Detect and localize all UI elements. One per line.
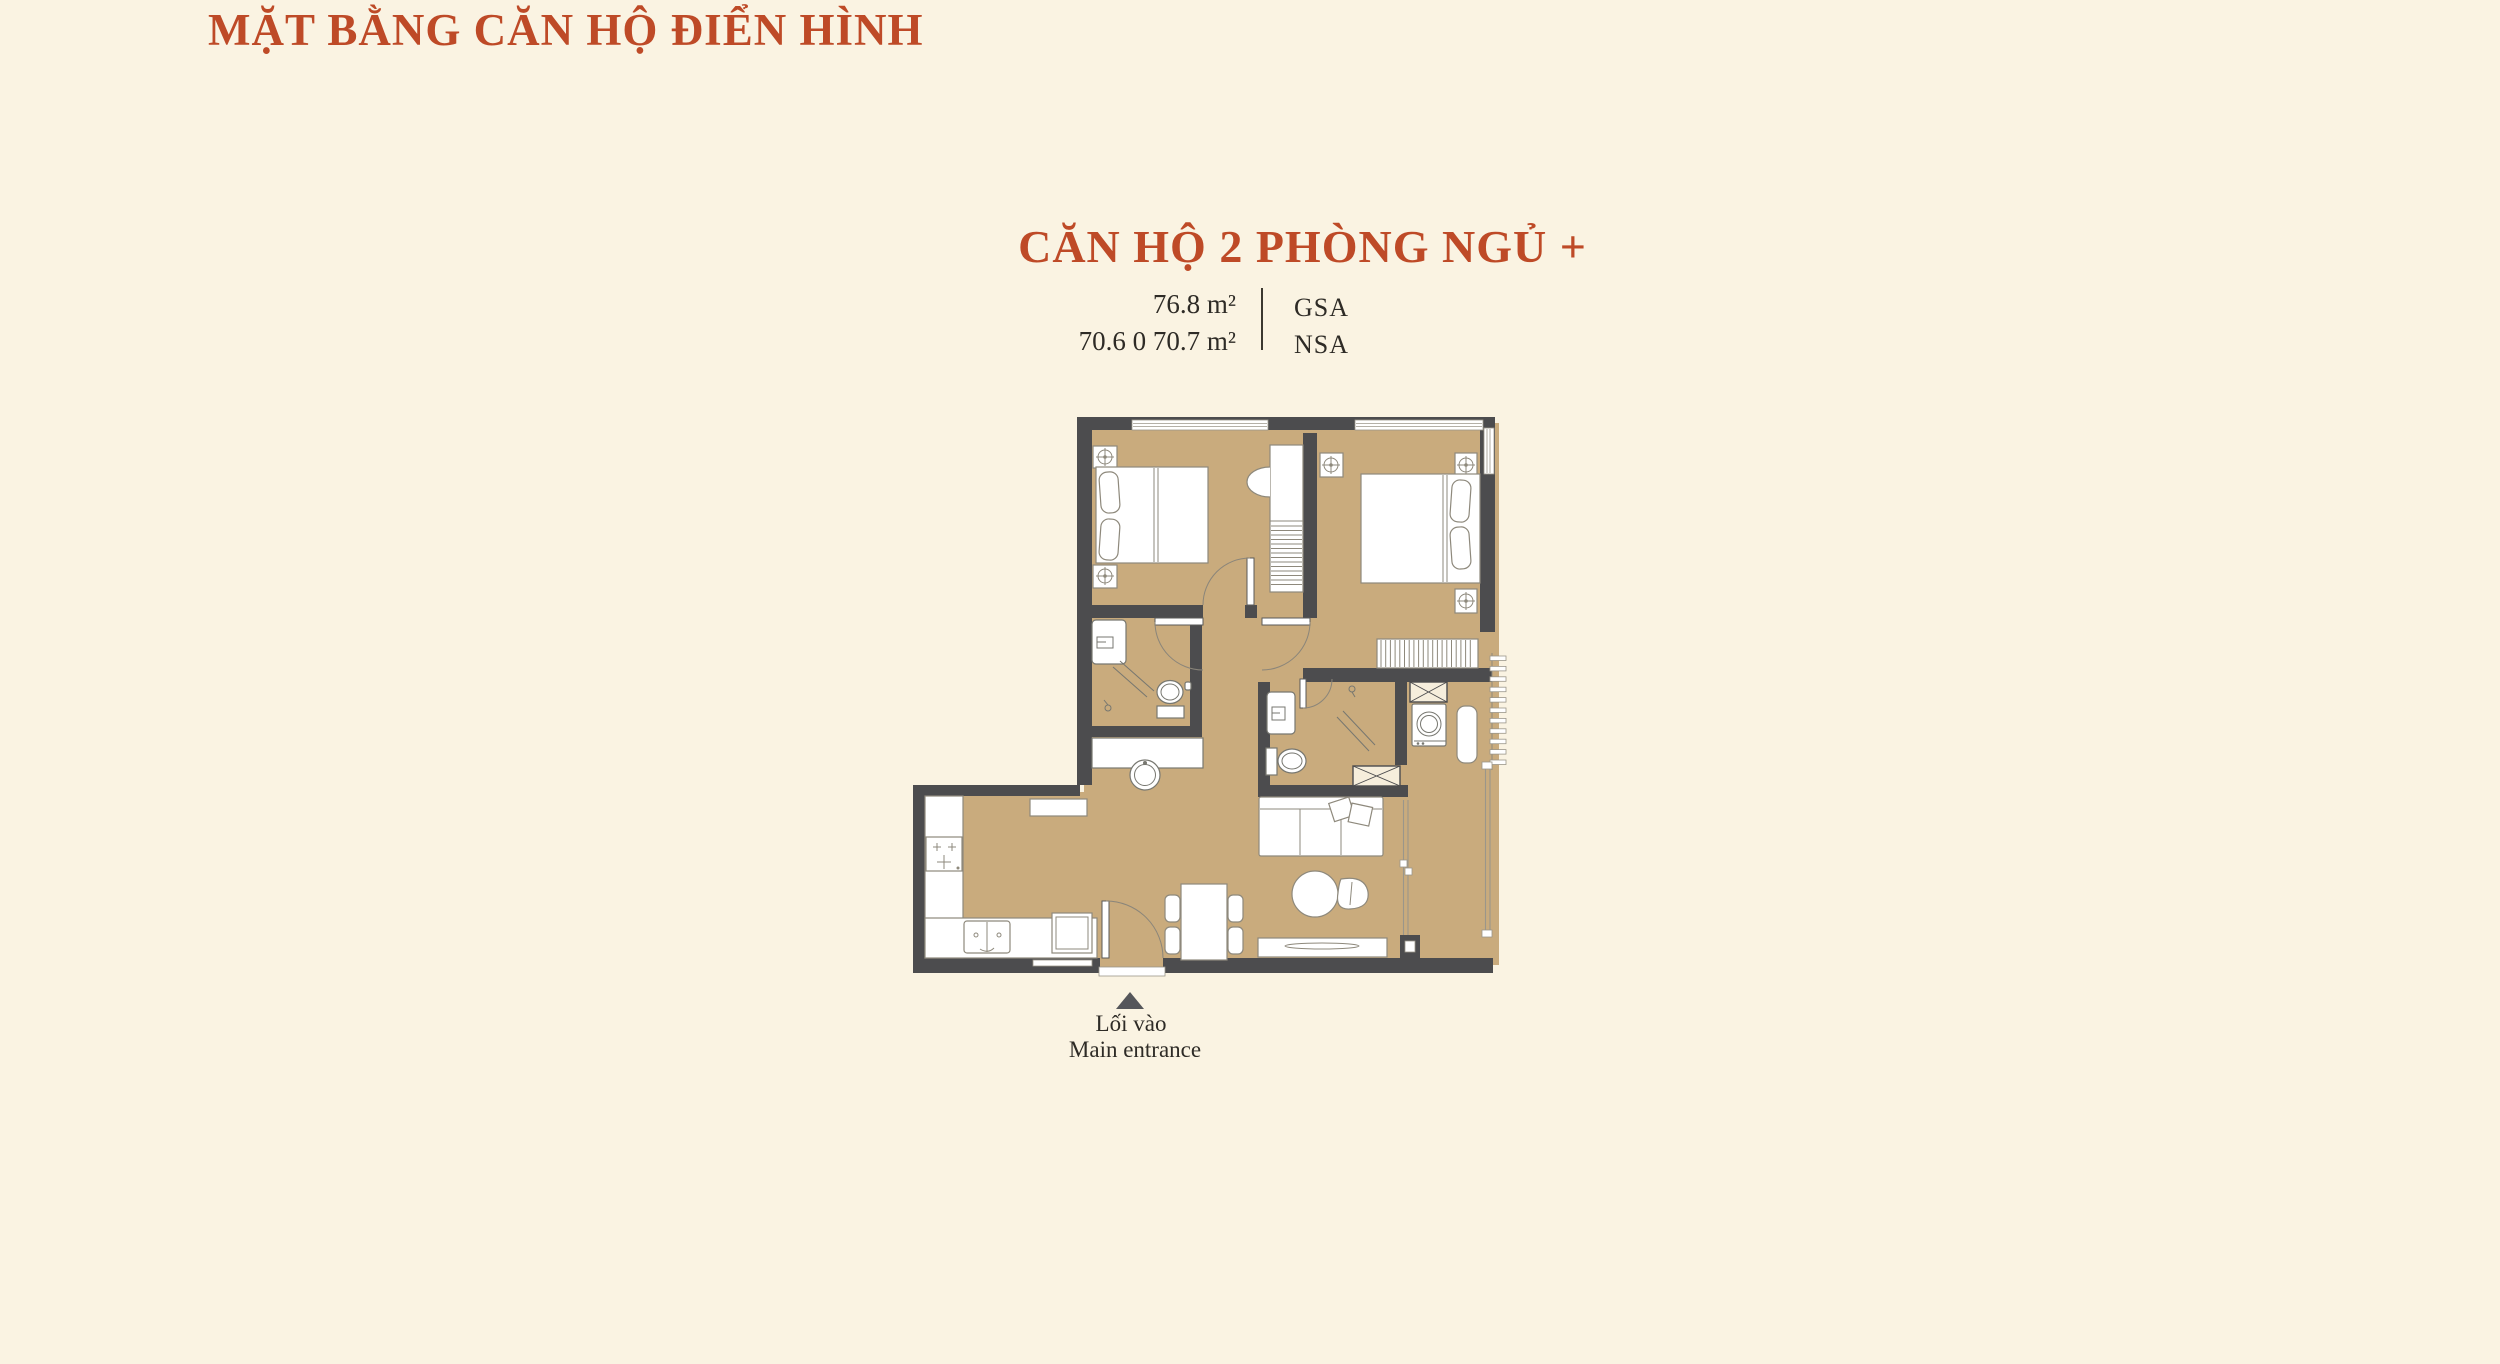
nightstand-icon: [1455, 453, 1477, 477]
floor-plan-drawing: [900, 390, 1540, 1015]
chair-icon: [1228, 895, 1243, 922]
area-labels: GSA NSA: [1294, 289, 1414, 363]
sink-icon: [1092, 620, 1126, 664]
tv-console-icon: [1258, 938, 1387, 957]
sink-icon: [1267, 692, 1295, 734]
area-nsa-value: 70.6 0 70.7 m²: [1000, 323, 1236, 360]
kitchen-cabinet: [1030, 799, 1087, 816]
entrance-arrow-icon: [1116, 992, 1144, 1009]
area-values: 76.8 m² 70.6 0 70.7 m²: [1000, 286, 1236, 360]
area-nsa-label: NSA: [1294, 326, 1414, 363]
armchair-icon: [1338, 878, 1369, 909]
chair-icon: [1228, 927, 1243, 954]
window-bedroom1-icon: [1132, 420, 1268, 430]
nightstand-icon: [1093, 565, 1117, 588]
rug-icon: [1292, 871, 1338, 917]
shelf-icon: [1457, 706, 1477, 763]
chair-icon: [1165, 927, 1180, 954]
nightstand-icon: [1093, 446, 1117, 468]
drying-rack-icon: [1490, 653, 1506, 770]
floor-plan: [900, 390, 1540, 1015]
washing-machine-icon: [1412, 704, 1446, 746]
window-bedroom2-icon: [1355, 420, 1483, 430]
unit-name: CĂN HỘ 2 PHÒNG NGỦ +: [1005, 220, 1600, 273]
area-gsa-label: GSA: [1294, 289, 1414, 326]
bed-icon: [1096, 467, 1208, 563]
chair-icon: [1165, 895, 1180, 922]
area-divider: [1261, 288, 1263, 350]
kitchen-sink-icon: [964, 921, 1010, 953]
window-side-icon: [1484, 428, 1494, 474]
nightstand-icon: [1320, 453, 1343, 477]
entrance-label-en: Main entrance: [1031, 1037, 1239, 1063]
entrance-label-vi: Lối vào: [1031, 1011, 1231, 1037]
wall-niche: [1033, 960, 1092, 966]
dining-table-icon: [1181, 884, 1227, 960]
bed-icon: [1361, 474, 1480, 583]
toilet-icon: [1266, 748, 1306, 775]
wardrobe-icon: [1377, 639, 1478, 668]
nightstand-icon: [1455, 589, 1477, 613]
page-title: MẶT BẰNG CĂN HỘ ĐIỂN HÌNH: [208, 4, 1108, 56]
sofa-icon: [1259, 797, 1383, 856]
stove-icon: [926, 837, 962, 871]
page: MẶT BẰNG CĂN HỘ ĐIỂN HÌNH CĂN HỘ 2 PHÒNG…: [0, 0, 2500, 1364]
appliance-icon: [1052, 913, 1092, 953]
dining-area: [1165, 884, 1243, 960]
area-gsa-value: 76.8 m²: [1000, 286, 1236, 323]
